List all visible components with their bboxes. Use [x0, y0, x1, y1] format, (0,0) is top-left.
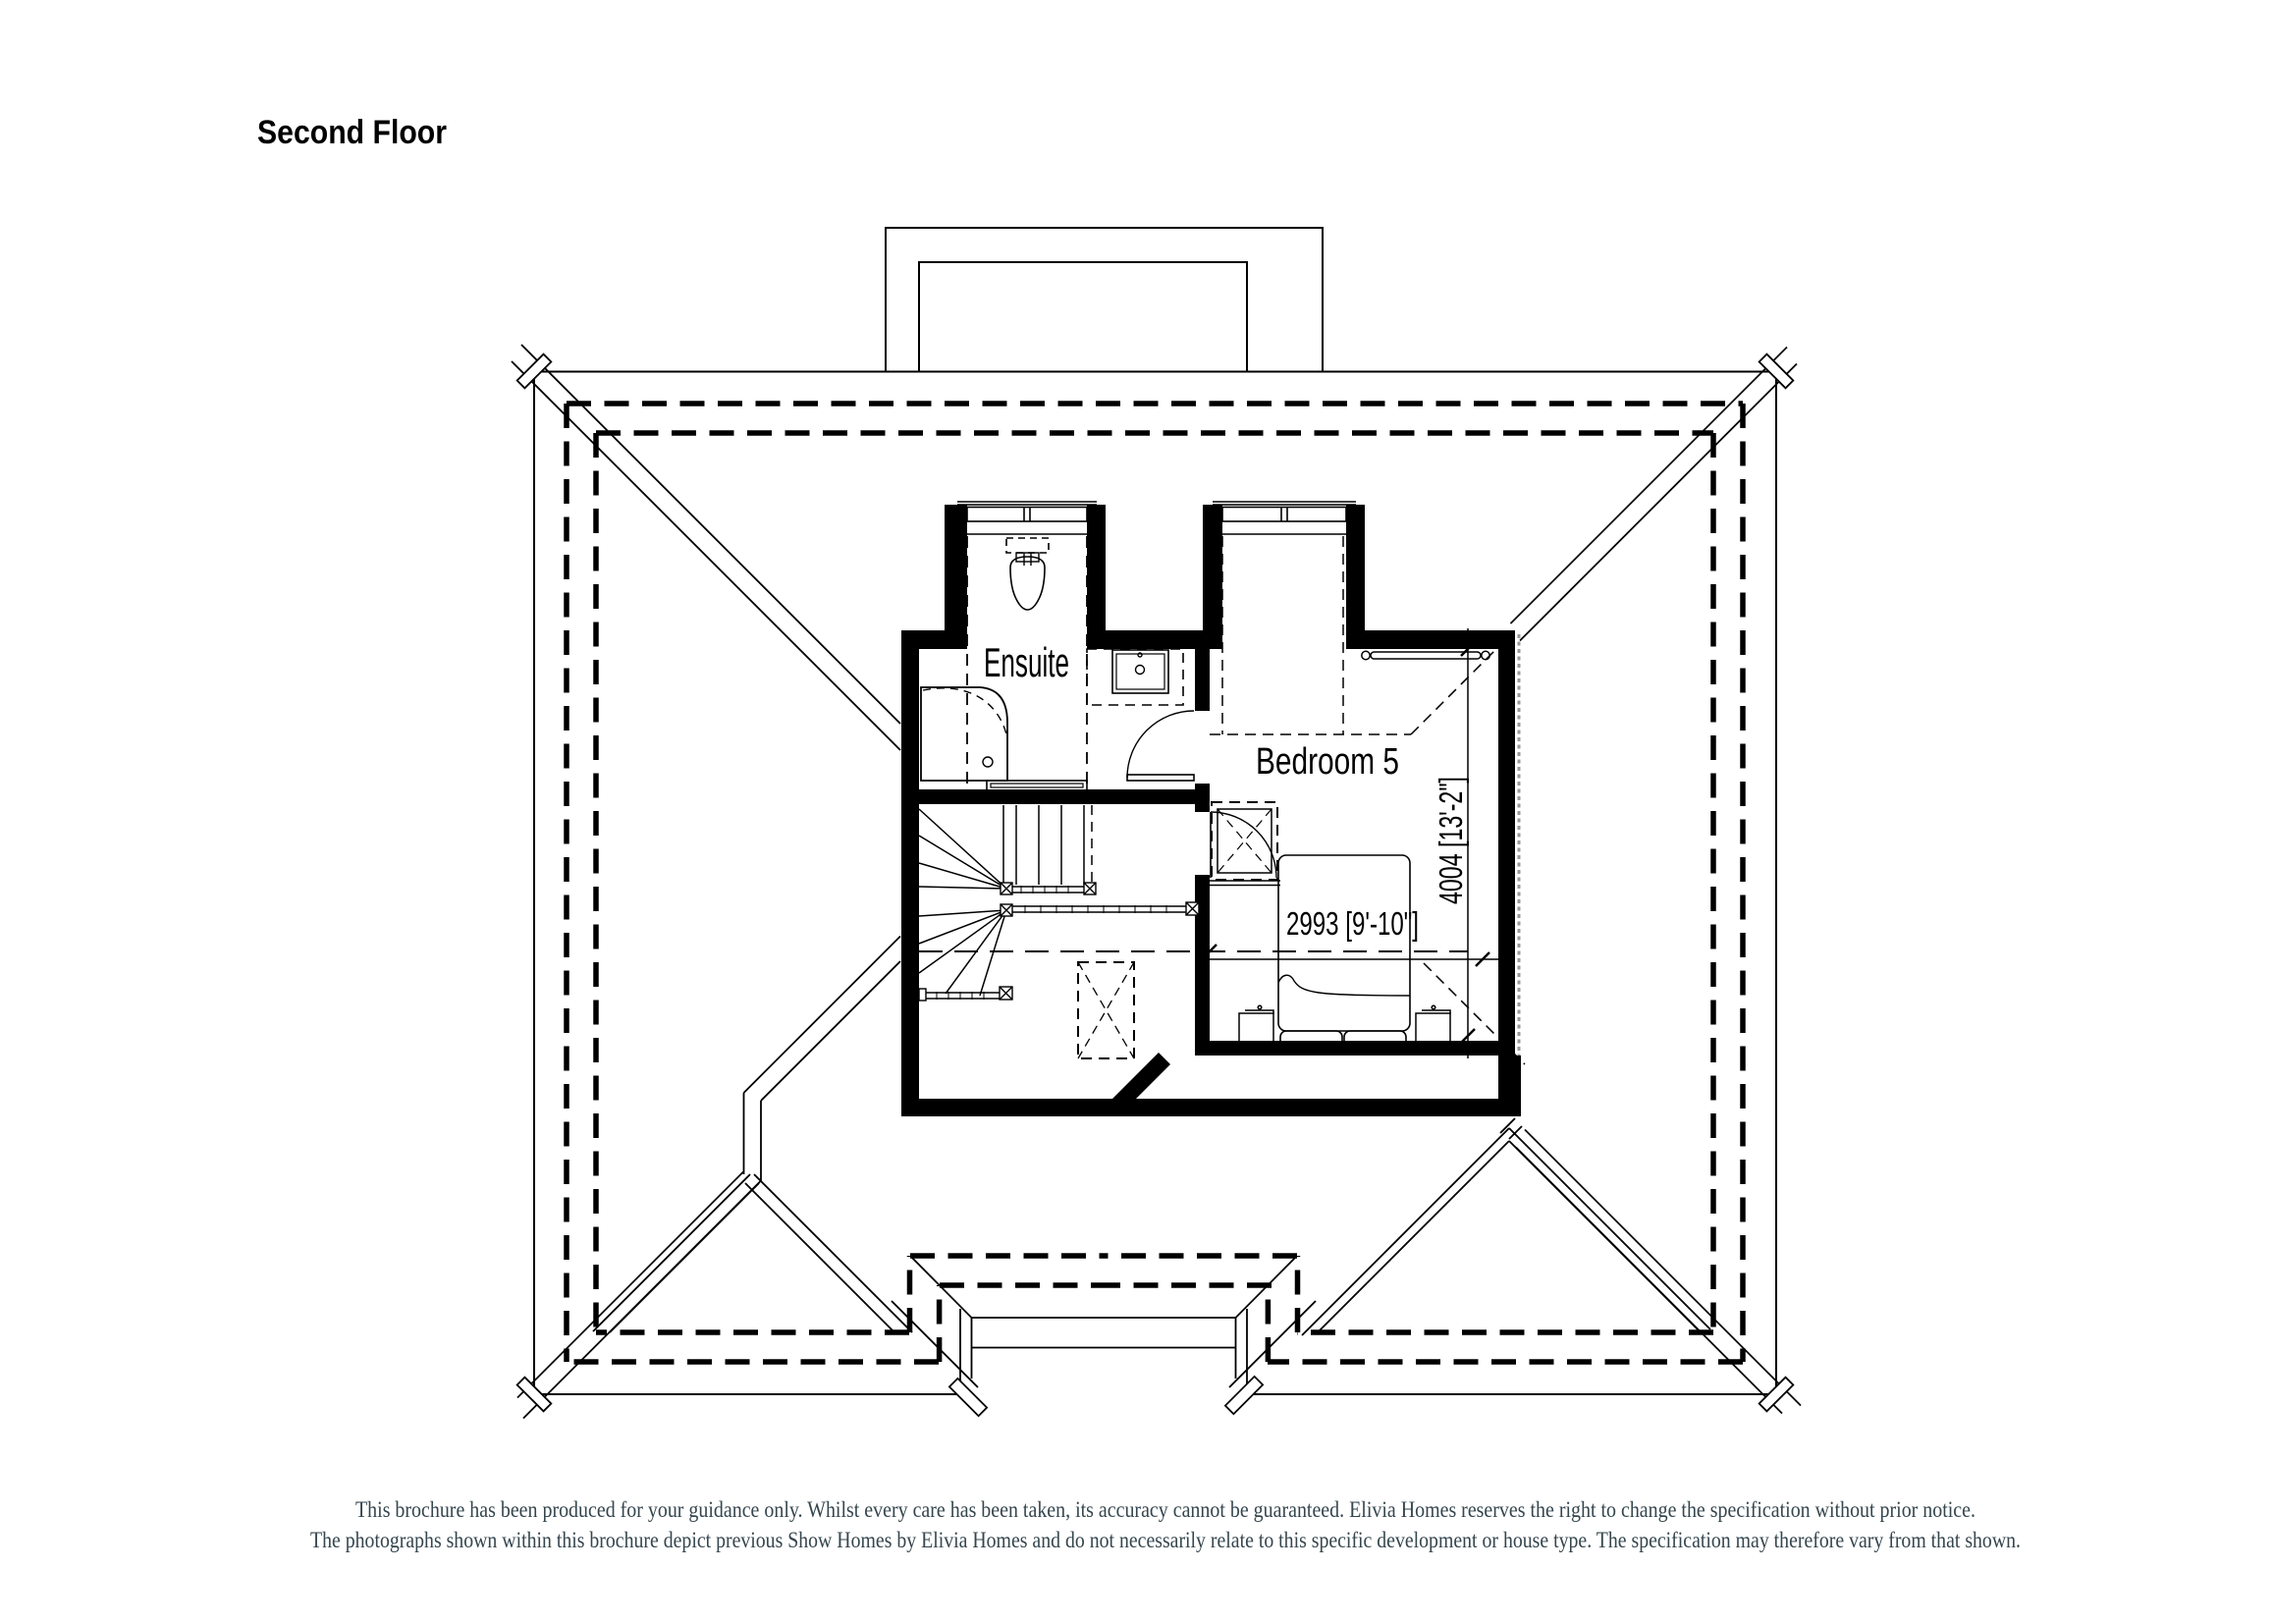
svg-text:2993 [9'-10"]: 2993 [9'-10"] [1286, 905, 1419, 942]
svg-text:Ensuite: Ensuite [984, 639, 1069, 685]
svg-text:4004 [13'-2"]: 4004 [13'-2"] [1433, 777, 1469, 904]
svg-text:This brochure has been produce: This brochure has been produced for your… [355, 1497, 1975, 1522]
svg-text:Bedroom 5: Bedroom 5 [1256, 741, 1399, 783]
svg-text:The photographs shown within t: The photographs shown within this brochu… [310, 1528, 2021, 1552]
svg-text:Second Floor: Second Floor [257, 114, 447, 151]
